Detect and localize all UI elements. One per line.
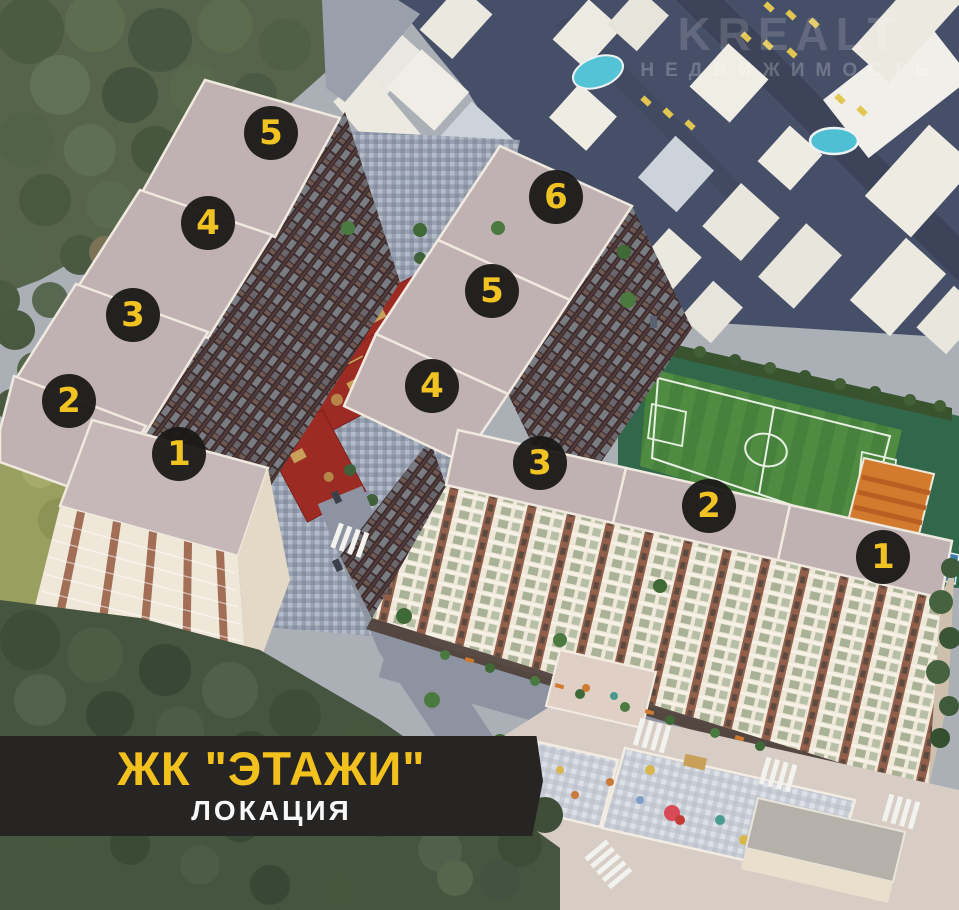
section-marker-left-3: 3 [106,288,160,342]
section-marker-right-3: 3 [513,436,567,490]
section-marker-left-4: 4 [181,196,235,250]
section-marker-right-1: 1 [856,530,910,584]
banner-subtitle: ЛОКАЦИЯ [191,795,351,827]
section-marker-right-6: 6 [529,170,583,224]
aerial-render-scene: KREALT НЕДВИЖИМОСТЬ 12345123456 ЖК "ЭТАЖ… [0,0,959,910]
section-marker-left-1: 1 [152,427,206,481]
title-ribbon: ЖК "ЭТАЖИ" ЛОКАЦИЯ [0,736,543,836]
section-marker-right-5: 5 [465,264,519,318]
complex-name: ЖК "ЭТАЖИ" [117,745,425,793]
section-marker-right-4: 4 [405,359,459,413]
section-marker-left-2: 2 [42,374,96,428]
section-marker-right-2: 2 [682,479,736,533]
section-marker-left-5: 5 [244,106,298,160]
